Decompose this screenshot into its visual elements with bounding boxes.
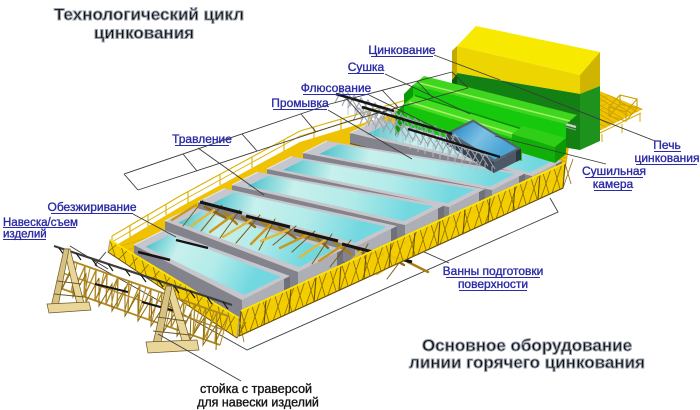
svg-text:Флюсование: Флюсование [301,81,372,95]
svg-text:для навески изделий: для навески изделий [197,396,319,410]
svg-text:Промывка: Промывка [271,96,329,110]
svg-text:Ванны подготовки: Ванны подготовки [443,264,544,278]
svg-text:изделий: изделий [3,229,47,241]
svg-text:Обезжиривание: Обезжиривание [47,200,136,214]
svg-text:поверхности: поверхности [458,277,528,291]
svg-text:камера: камера [593,177,634,191]
svg-text:Цинкование: Цинкование [368,43,436,57]
svg-text:Печь: Печь [653,138,680,152]
svg-text:цинкования: цинкования [634,151,699,165]
svg-text:цинкования: цинкования [94,24,194,43]
svg-text:Сушильная: Сушильная [582,164,646,178]
svg-text:Сушка: Сушка [348,60,385,74]
svg-text:Травление: Травление [172,132,232,146]
svg-text:Технологический цикл: Технологический цикл [54,5,244,24]
svg-text:линии горячего цинкования: линии горячего цинкования [409,353,645,372]
svg-text:стойка с траверсой: стойка с траверсой [200,382,312,396]
